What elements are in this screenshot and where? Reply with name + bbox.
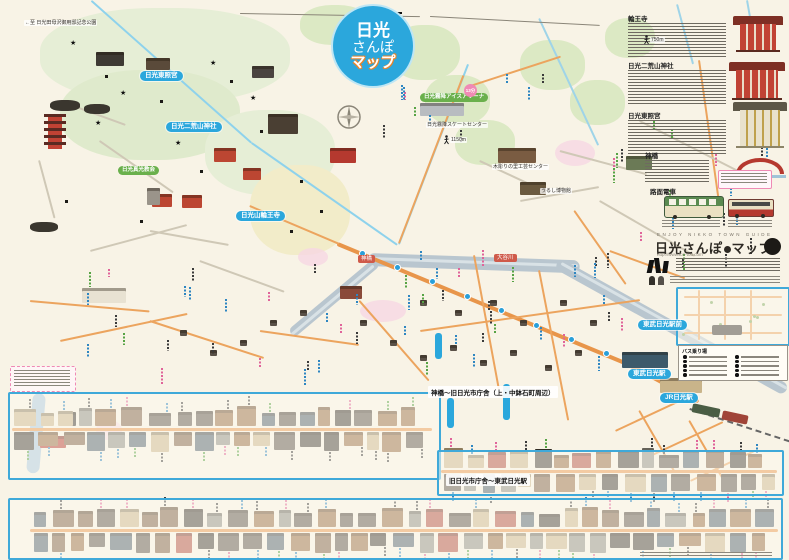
map-small-label: ←至 日光田母沢御用邸記念公園 (24, 20, 97, 26)
map-small-label: うるし博物館 (540, 188, 572, 194)
place-pill-東武日光駅: 東武日光駅 (628, 369, 671, 379)
map-small-label: 日光霧降スケートセンター (426, 122, 488, 128)
map-spot-label: 大谷川 (494, 254, 517, 262)
logo-line2: さんぽ (352, 40, 394, 55)
place-pill-JR日光駅: JR日光駅 (660, 393, 698, 403)
walk-time-circle: 13分 (464, 84, 477, 97)
map-title-logo: 日光 さんぽ マップ (333, 6, 413, 86)
place-pill-日光山輪王寺: 日光山輪王寺 (236, 211, 285, 221)
strip2-title: 旧日光市庁舎～東武日光駅 (446, 474, 530, 486)
place-pill-green: 日光霧降アイスアリーナ (420, 93, 488, 102)
walking-figure-icon (643, 35, 650, 45)
map-credit-line (640, 552, 772, 556)
logo-line1: 日光 (356, 22, 390, 40)
logo-line3: マップ (350, 55, 395, 71)
place-pill-日光東照宮: 日光東照宮 (140, 71, 183, 81)
map-small-label: 木彫りの里工芸センター (492, 164, 549, 170)
place-pill-green: 日光真光教会 (118, 166, 159, 175)
place-pill-日光二荒山神社: 日光二荒山神社 (166, 122, 222, 132)
nikko-walking-map: ★★★★★★ 日光 さんぽ マップ 輪王寺 日光二荒山神社 日光東照宮 神橋 路… (0, 0, 789, 560)
place-pill-東武日光駅前: 東武日光駅前 (638, 320, 687, 330)
strip1-title: 神橋～旧日光市庁舎（上・中鉢石町周辺） (428, 386, 558, 398)
map-small-label: 750m (650, 37, 665, 43)
map-spot-label: 神橋 (358, 255, 375, 263)
walking-figure-icon (443, 135, 450, 145)
map-small-label: 1150m (450, 137, 467, 143)
map-labels-layer: 日光東照宮日光二荒山神社日光山輪王寺東武日光駅前東武日光駅JR日光駅日光霧降アイ… (0, 0, 789, 560)
